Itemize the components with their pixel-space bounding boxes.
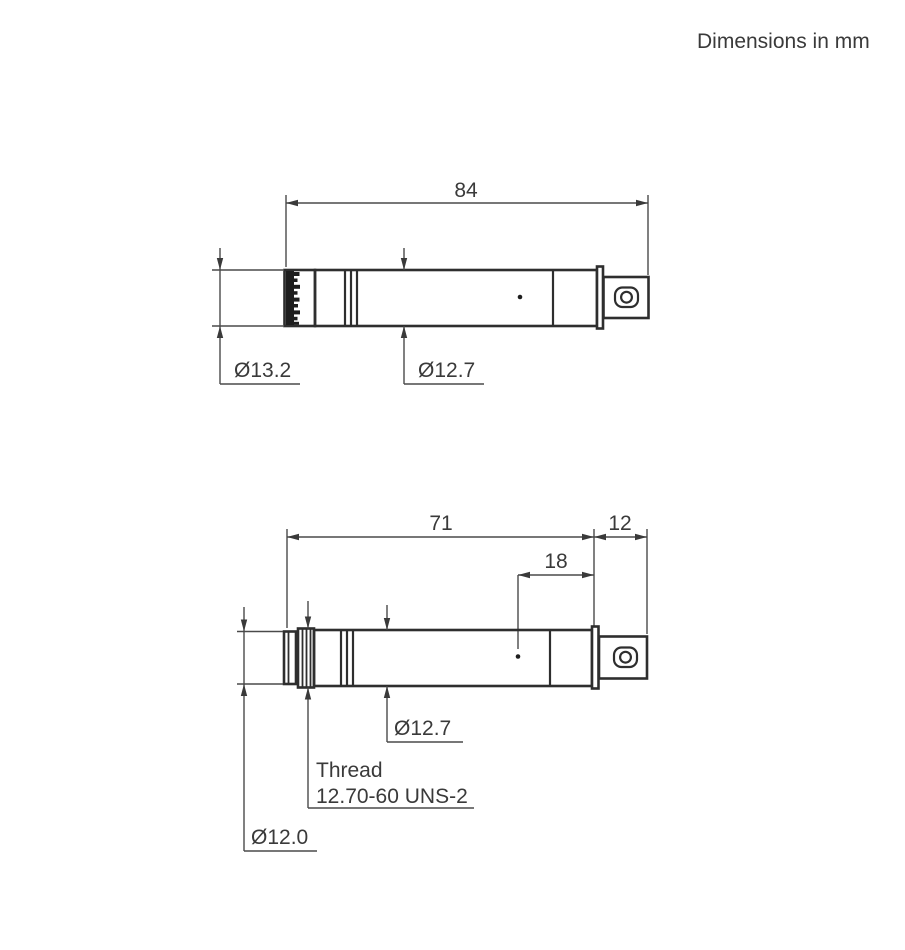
body-diameter-label: Ø12.7: [418, 359, 475, 382]
connector-length-label: 12: [608, 512, 631, 535]
thread-label-line1: Thread: [316, 759, 383, 782]
thread-label-line2: 12.70-60 UNS-2: [316, 785, 468, 808]
drawing-page: Dimensions in mm 84: [0, 0, 905, 950]
grid-diameter-label: Ø13.2: [234, 359, 291, 382]
body-diameter-label: Ø12.7: [394, 717, 451, 740]
front-diameter-label: Ø12.0: [251, 826, 308, 849]
units-note: Dimensions in mm: [697, 30, 870, 53]
technical-drawing-canvas: Dimensions in mm 84: [0, 0, 905, 950]
end-step-ring: [592, 627, 599, 689]
vent-hole-dot: [516, 654, 521, 659]
vent-to-end-label: 18: [544, 550, 567, 573]
end-step-ring: [597, 267, 603, 329]
body-length-label: 71: [429, 512, 452, 535]
connector-housing: [604, 277, 649, 318]
top-length-label: 84: [454, 179, 478, 202]
vent-hole-dot: [518, 295, 523, 300]
front-cap: [284, 632, 296, 685]
connector-housing: [599, 637, 647, 679]
